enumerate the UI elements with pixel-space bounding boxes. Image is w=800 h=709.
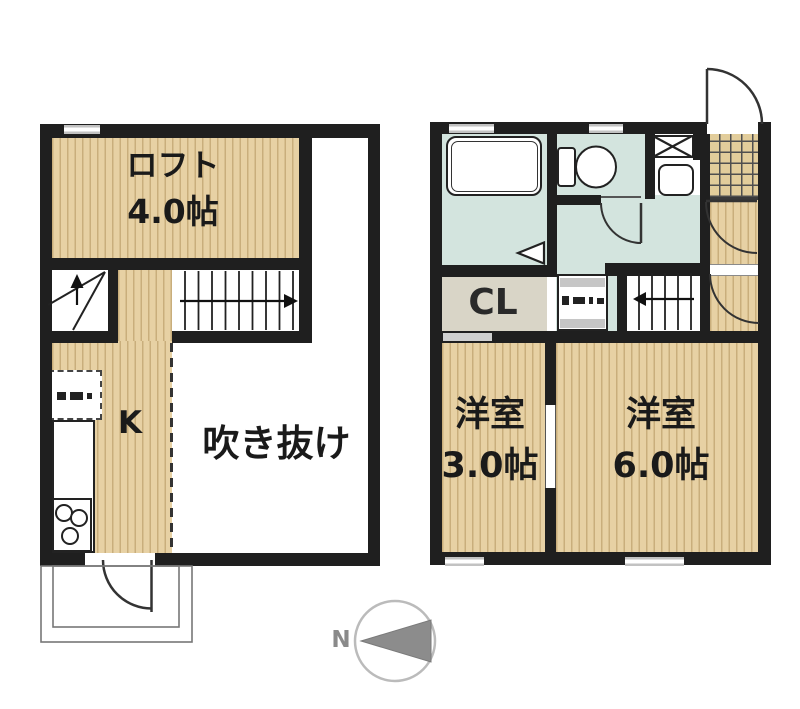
floor-plan-canvas: ロフト 4.0帖 K 吹き抜け CL 洋室 3.0帖 洋室 6.0帖 N [0, 0, 800, 709]
entry-door [103, 560, 152, 612]
bath-folding-door-icon [518, 243, 544, 264]
porch-outline [41, 566, 192, 642]
stair-up-arrow-icon [71, 274, 84, 305]
closet-label: CL [463, 284, 523, 322]
lower-stairs-direction-arrow-icon [633, 292, 694, 306]
bedroom-large-name: 洋室 [600, 397, 722, 434]
entrance-door [707, 69, 762, 124]
bedroom-large-label: 洋室 6.0帖 [600, 397, 722, 485]
washing-machine-x-icon [653, 136, 692, 157]
bedroom-small-label: 洋室 3.0帖 [430, 397, 550, 485]
north-label: N [328, 628, 354, 652]
toilet-door [601, 197, 641, 243]
compass [355, 601, 435, 681]
loft-size: 4.0帖 [93, 195, 253, 230]
void-label: 吹き抜け [189, 425, 364, 464]
hallway-door [706, 201, 757, 253]
lower-stairs [639, 273, 691, 330]
plan-overlay [0, 0, 800, 709]
bedroom-large-size: 6.0帖 [600, 448, 722, 485]
stove-burners-icon [56, 505, 87, 544]
loft-name: ロフト [93, 150, 253, 183]
toilet-icon [558, 147, 616, 188]
kitchen-label: K [113, 407, 147, 440]
loft-label: ロフト 4.0帖 [93, 150, 253, 229]
bedroom-large-door [710, 274, 759, 323]
bedroom-small-size: 3.0帖 [430, 448, 550, 485]
bedroom-small-name: 洋室 [430, 397, 550, 434]
